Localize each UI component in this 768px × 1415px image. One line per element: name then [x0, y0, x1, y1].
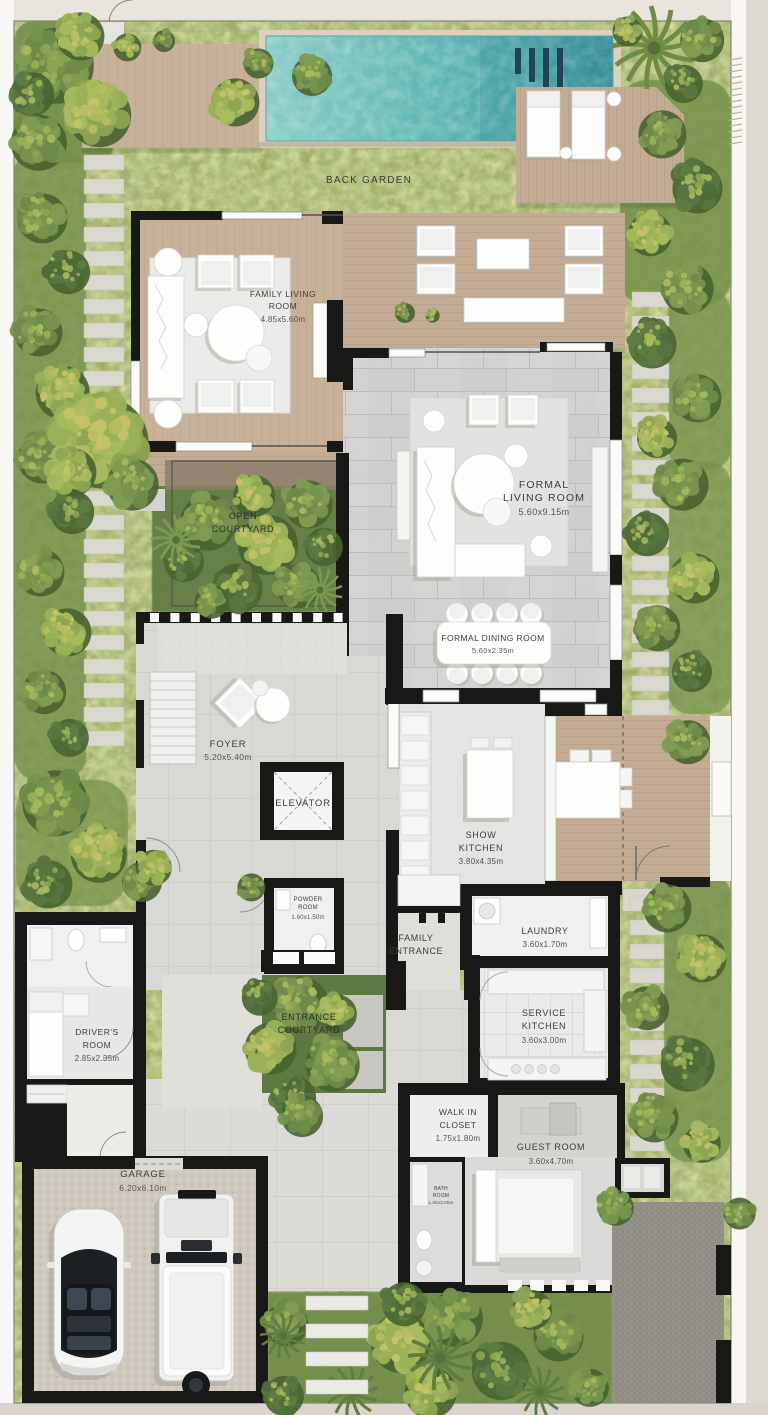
- svg-text:ENTRANCE: ENTRANCE: [389, 946, 443, 956]
- svg-text:3.60x4.70m: 3.60x4.70m: [529, 1157, 574, 1166]
- svg-text:ELEVATOR: ELEVATOR: [275, 798, 331, 809]
- svg-text:1.65x3.05m: 1.65x3.05m: [428, 1200, 453, 1205]
- svg-text:WALK IN: WALK IN: [439, 1107, 477, 1117]
- svg-text:CLOSET: CLOSET: [439, 1120, 476, 1130]
- svg-text:3.60x1.70m: 3.60x1.70m: [523, 940, 568, 949]
- svg-text:GARAGE: GARAGE: [120, 1169, 165, 1180]
- svg-text:ROOM: ROOM: [433, 1193, 449, 1199]
- svg-text:SHOW: SHOW: [466, 830, 497, 840]
- svg-text:ROOM: ROOM: [298, 905, 318, 911]
- svg-text:FAMILY: FAMILY: [399, 933, 434, 943]
- svg-text:1.75x1.80m: 1.75x1.80m: [436, 1134, 481, 1143]
- svg-text:ROOM: ROOM: [83, 1040, 111, 1050]
- svg-text:6.20x6.10m: 6.20x6.10m: [119, 1183, 166, 1193]
- svg-text:POWDER: POWDER: [294, 897, 323, 903]
- svg-text:SERVICE: SERVICE: [522, 1008, 566, 1018]
- svg-text:2.85x2.35m: 2.85x2.35m: [75, 1054, 120, 1063]
- svg-text:3.80x4.35m: 3.80x4.35m: [459, 857, 504, 866]
- svg-text:GUEST ROOM: GUEST ROOM: [517, 1142, 585, 1152]
- svg-text:3.60x3.00m: 3.60x3.00m: [522, 1036, 567, 1045]
- svg-text:DRIVER'S: DRIVER'S: [75, 1027, 118, 1037]
- svg-text:1.60x1.50m: 1.60x1.50m: [291, 915, 324, 921]
- svg-text:KITCHEN: KITCHEN: [522, 1021, 566, 1031]
- svg-text:KITCHEN: KITCHEN: [459, 843, 503, 853]
- svg-text:BATH: BATH: [434, 1186, 448, 1192]
- svg-text:LAUNDRY: LAUNDRY: [521, 926, 568, 936]
